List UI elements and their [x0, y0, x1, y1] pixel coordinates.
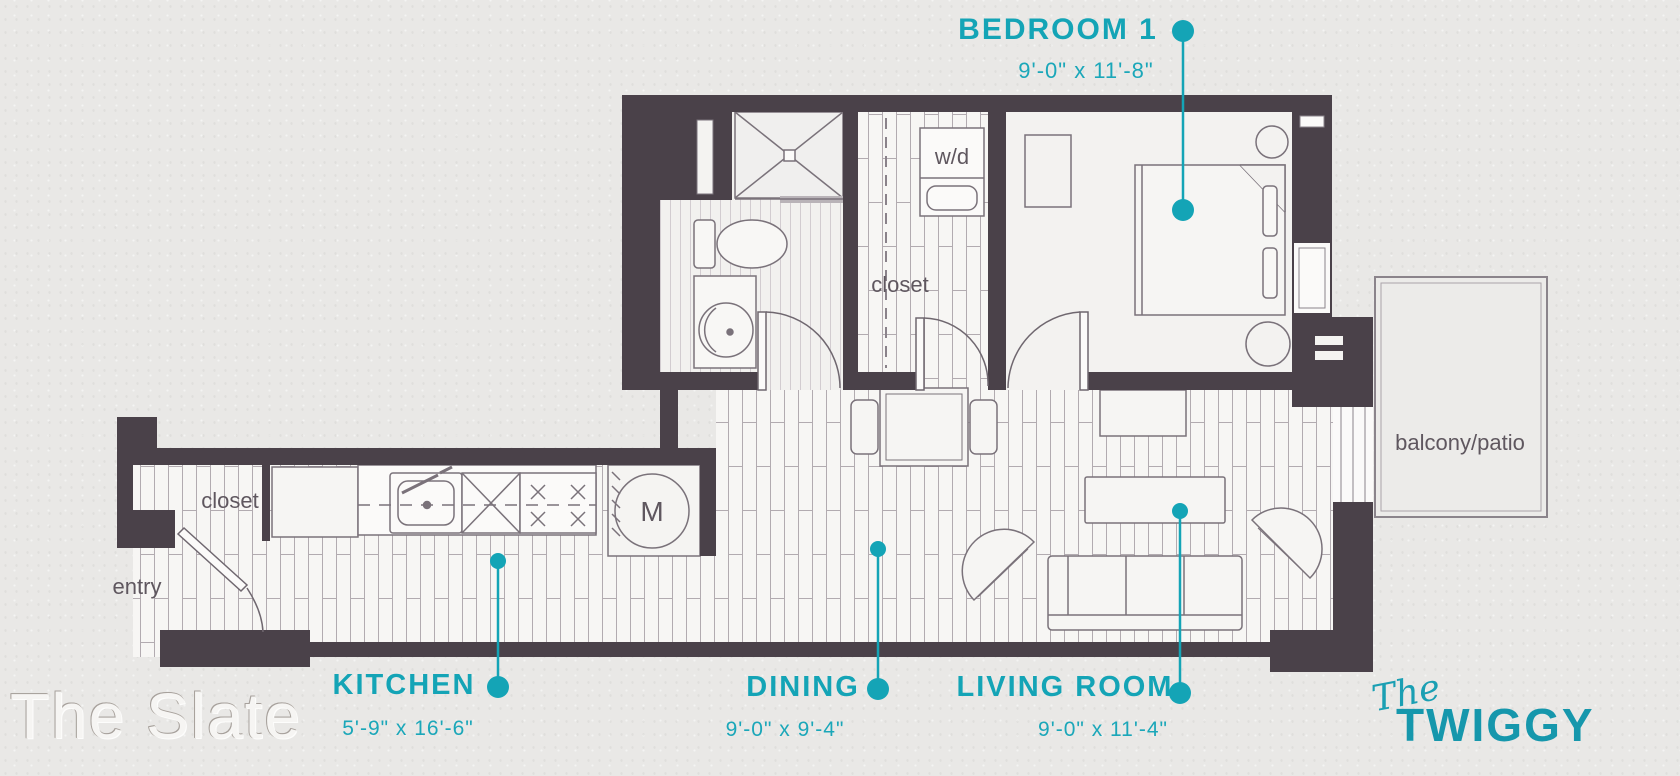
dining-label: DINING [746, 673, 860, 702]
washer-dryer [920, 128, 984, 216]
balcony-floor [1375, 277, 1547, 517]
fridge [272, 467, 358, 537]
coffee-table [1085, 477, 1225, 523]
living-room-dims: 9'-0" x 11'-4" [1038, 719, 1168, 740]
dining-dims: 9'-0" x 9'-4" [726, 719, 845, 740]
living-room-label: LIVING ROOM [957, 673, 1174, 702]
bedroom-stool [1256, 126, 1288, 158]
tv-console [1100, 390, 1186, 436]
bed [1135, 165, 1285, 315]
range-stove [520, 473, 596, 533]
kitchen-label: KITCHEN [333, 671, 476, 700]
sofa [1048, 556, 1242, 630]
bedroom-window [1294, 243, 1330, 313]
hall-closet-label: closet [871, 272, 928, 297]
dishwasher [462, 473, 520, 533]
dining-chair [970, 400, 997, 454]
balcony-label: balcony/patio [1395, 430, 1525, 455]
wall-shelf [1315, 351, 1343, 360]
dining-chair [851, 400, 878, 454]
shower [735, 112, 843, 203]
bedroom-dims: 9'-0" x 11'-8" [1018, 60, 1153, 82]
floor-plan-page: w/d closet closet entry balcony/patio M [0, 0, 1680, 776]
dining-table [851, 388, 997, 466]
plumbing-niche [697, 120, 713, 194]
pillow [1263, 186, 1277, 236]
sink-vanity [694, 276, 756, 368]
entry-closet-label: closet [201, 488, 258, 513]
toilet [694, 220, 787, 268]
window [1300, 116, 1324, 127]
kitchen-sink [390, 467, 462, 533]
wall-shelf [1315, 336, 1343, 345]
entry-label: entry [113, 574, 162, 599]
pillow [1263, 248, 1277, 298]
nightstand [1025, 135, 1071, 207]
logo-plan-name: TWIGGY [1396, 702, 1595, 748]
mechanical-label: M [640, 496, 663, 527]
property-watermark: The Slate [10, 684, 302, 748]
bedroom-round-table [1246, 322, 1290, 366]
washer-dryer-label: w/d [934, 144, 969, 169]
balcony-sliding-door [1333, 407, 1373, 502]
kitchen-dims: 5'-9" x 16'-6" [342, 718, 473, 739]
floor-plan-drawing: w/d closet closet entry balcony/patio M [0, 0, 1680, 776]
bedroom-label: BEDROOM 1 [958, 15, 1158, 45]
